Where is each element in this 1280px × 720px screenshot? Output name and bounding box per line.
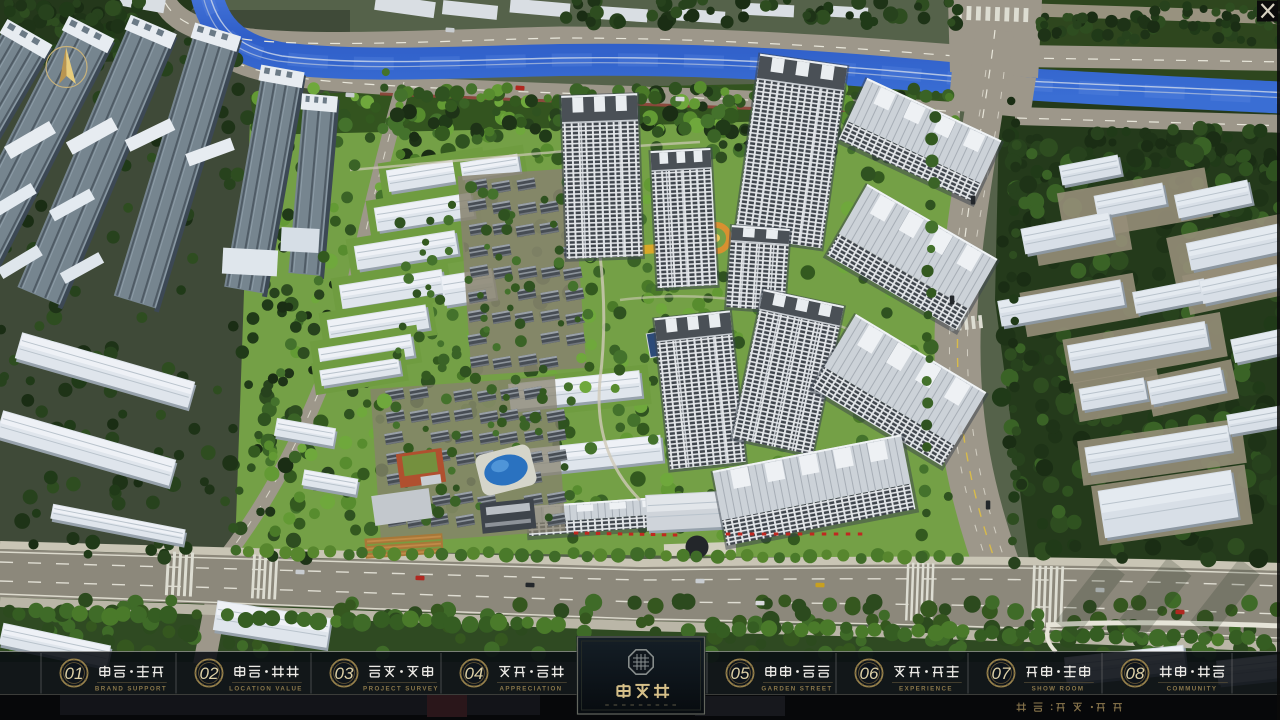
svg-text:GARDEN STREET: GARDEN STREET xyxy=(761,686,832,693)
svg-text:APPRECIATION: APPRECIATION xyxy=(499,686,562,693)
svg-text:01: 01 xyxy=(65,664,84,683)
svg-text:03: 03 xyxy=(335,664,354,683)
svg-text:07: 07 xyxy=(992,664,1011,683)
svg-text:BRAND SUPPORT: BRAND SUPPORT xyxy=(95,686,167,693)
svg-text:EXPERIENCE: EXPERIENCE xyxy=(899,686,953,693)
svg-text:04: 04 xyxy=(465,664,484,683)
svg-text:06: 06 xyxy=(860,664,879,683)
svg-text:LOCATION VALUE: LOCATION VALUE xyxy=(229,686,303,693)
svg-text:SHOW ROOM: SHOW ROOM xyxy=(1032,686,1085,693)
svg-text:PROJECT SURVEY: PROJECT SURVEY xyxy=(363,686,439,693)
svg-text:08: 08 xyxy=(1126,664,1145,683)
svg-text:05: 05 xyxy=(731,664,750,683)
svg-text:02: 02 xyxy=(200,664,219,683)
svg-text:COMMUNITY: COMMUNITY xyxy=(1167,686,1218,693)
